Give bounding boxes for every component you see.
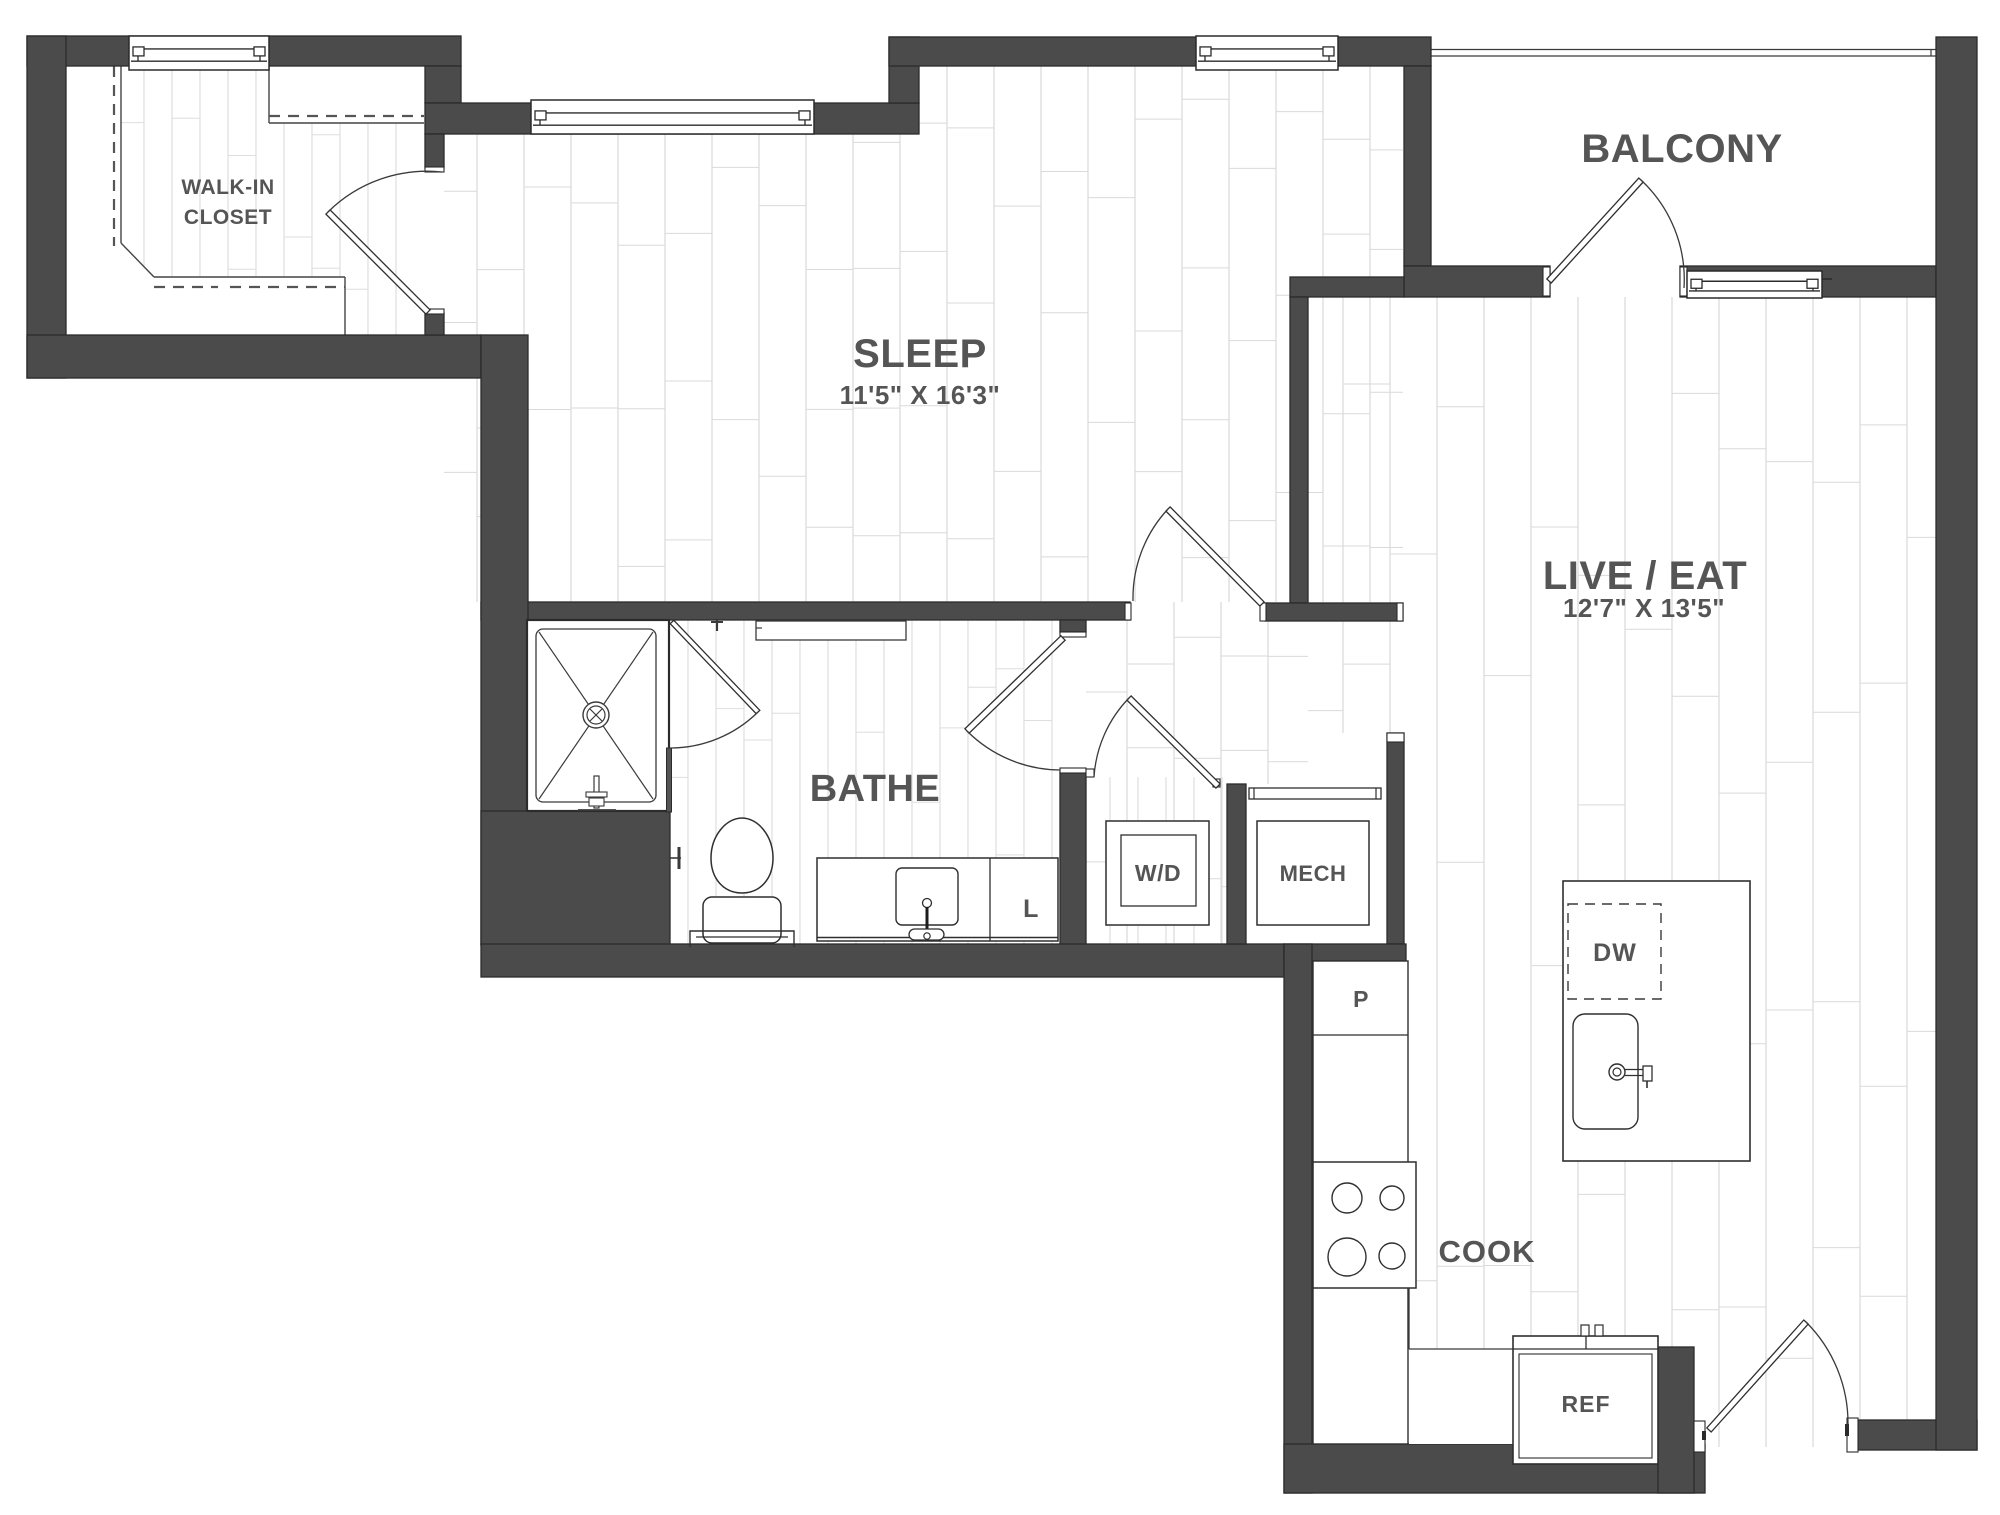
svg-text:BALCONY: BALCONY: [1581, 127, 1782, 171]
svg-text:L: L: [1023, 895, 1039, 923]
svg-text:12'7" X 13'5": 12'7" X 13'5": [1563, 593, 1725, 623]
svg-text:CLOSET: CLOSET: [184, 206, 272, 229]
svg-text:DW: DW: [1593, 939, 1637, 967]
svg-text:SLEEP: SLEEP: [853, 332, 987, 376]
svg-text:MECH: MECH: [1280, 861, 1347, 886]
svg-text:11'5" X 16'3": 11'5" X 16'3": [840, 380, 1001, 410]
svg-text:COOK: COOK: [1439, 1234, 1536, 1269]
svg-text:WALK-IN: WALK-IN: [181, 176, 274, 199]
svg-text:W/D: W/D: [1135, 860, 1181, 886]
svg-text:REF: REF: [1562, 1391, 1611, 1417]
svg-text:LIVE / EAT: LIVE / EAT: [1543, 554, 1747, 598]
svg-text:P: P: [1353, 986, 1369, 1012]
svg-text:BATHE: BATHE: [810, 768, 941, 810]
